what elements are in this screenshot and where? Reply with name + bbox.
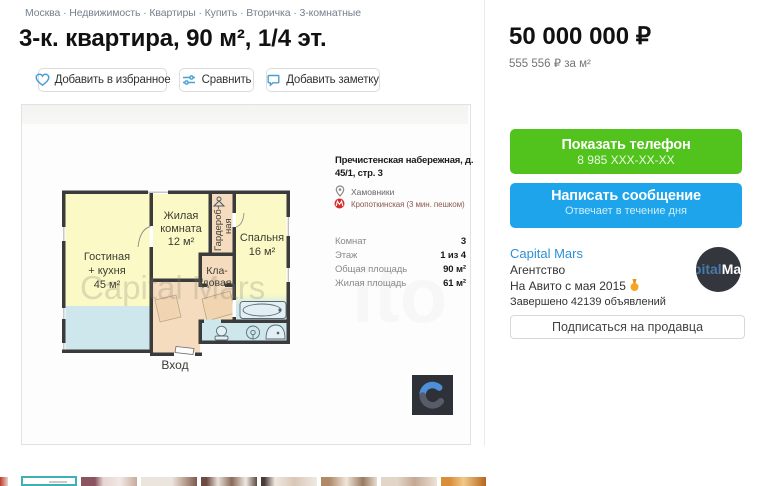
svg-text:Жилая: Жилая (164, 210, 199, 222)
svg-text:Вход: Вход (161, 358, 188, 372)
svg-text:комната: комната (160, 223, 202, 235)
svg-text:45 м²: 45 м² (94, 279, 121, 291)
svg-text:Гостиная: Гостиная (84, 251, 130, 263)
svg-text:ная: ная (223, 218, 234, 234)
svg-text:+ кухня: + кухня (88, 265, 125, 277)
svg-text:12 м²: 12 м² (168, 236, 195, 248)
svg-text:Спальня: Спальня (240, 232, 284, 244)
svg-text:довая: довая (203, 277, 232, 289)
svg-text:Кла-: Кла- (206, 265, 228, 277)
svg-text:16 м²: 16 м² (249, 246, 276, 258)
